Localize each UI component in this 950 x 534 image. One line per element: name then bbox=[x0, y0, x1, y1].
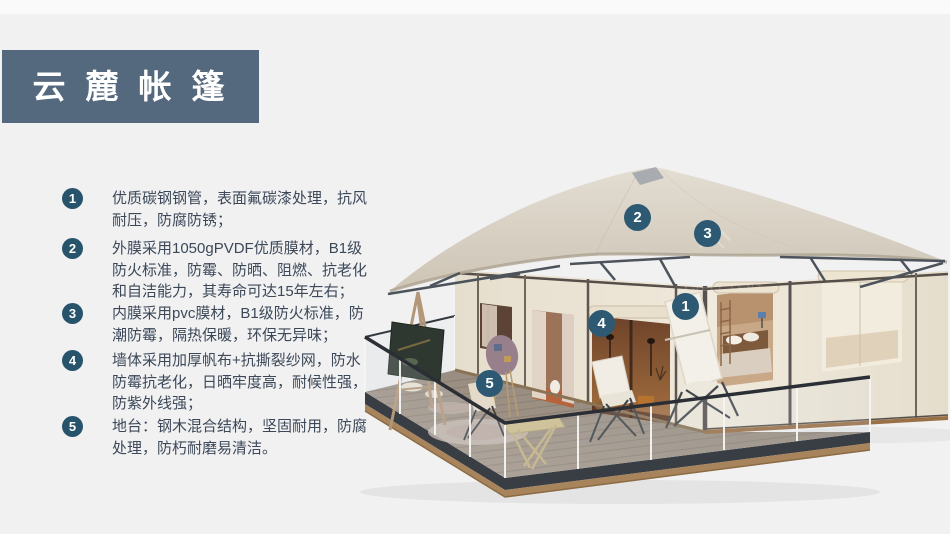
callout-badge-5: 5 bbox=[476, 370, 503, 397]
feature-badge-5: 5 bbox=[62, 416, 83, 437]
feature-text-2: 外膜采用1050gPVDF优质膜材，B1级防火标准，防霉、防晒、阻燃、抗老化和自… bbox=[112, 238, 370, 303]
tent-render: 雪利篷房 XUELI TENT bbox=[360, 140, 950, 520]
callout-badge-3: 3 bbox=[694, 220, 721, 247]
title-banner: 云麓帐篷 bbox=[2, 50, 259, 123]
callout-badge-2: 2 bbox=[624, 204, 651, 231]
slide: 云麓帐篷 1 优质碳钢钢管，表面氟碳漆处理，抗风耐压，防腐防锈； 2 外膜采用1… bbox=[0, 0, 950, 534]
feature-badge-3: 3 bbox=[62, 303, 83, 324]
bedroom-window bbox=[713, 282, 779, 387]
feature-badge-4: 4 bbox=[62, 350, 83, 371]
page-title: 云麓帐篷 bbox=[2, 50, 259, 123]
feature-text-1: 优质碳钢钢管，表面氟碳漆处理，抗风耐压，防腐防锈； bbox=[112, 188, 370, 231]
feature-item-3: 3 内膜采用pvc膜材，B1级防火标准，防潮防霉，隔热保暖，环保无异味； bbox=[62, 303, 374, 346]
feature-item-4: 4 墙体采用加厚帆布+抗撕裂纱网，防水防霉抗老化，日晒牢度高，耐候性强，防紫外线… bbox=[62, 350, 374, 415]
feature-badge-1: 1 bbox=[62, 188, 83, 209]
feature-item-5: 5 地台：钢木混合结构，坚固耐用，防腐处理，防朽耐磨易清洁。 bbox=[62, 416, 374, 459]
feature-item-2: 2 外膜采用1050gPVDF优质膜材，B1级防火标准，防霉、防晒、阻燃、抗老化… bbox=[62, 238, 374, 303]
feature-item-1: 1 优质碳钢钢管，表面氟碳漆处理，抗风耐压，防腐防锈； bbox=[62, 188, 374, 231]
callout-badge-4: 4 bbox=[588, 310, 615, 337]
feature-badge-2: 2 bbox=[62, 238, 83, 259]
tent-illustration: 雪利篷房 XUELI TENT bbox=[360, 140, 950, 520]
feature-text-5: 地台：钢木混合结构，坚固耐用，防腐处理，防朽耐磨易清洁。 bbox=[112, 416, 370, 459]
watermark-cn: 雪利篷房 bbox=[674, 259, 774, 281]
top-border-strip bbox=[0, 0, 950, 14]
watermark-en: XUELI TENT bbox=[683, 283, 765, 293]
feature-text-3: 内膜采用pvc膜材，B1级防火标准，防潮防霉，隔热保暖，环保无异味； bbox=[112, 303, 370, 346]
callout-badge-1: 1 bbox=[672, 293, 699, 320]
feature-text-4: 墙体采用加厚帆布+抗撕裂纱网，防水防霉抗老化，日晒牢度高，耐候性强，防紫外线强； bbox=[112, 350, 370, 415]
